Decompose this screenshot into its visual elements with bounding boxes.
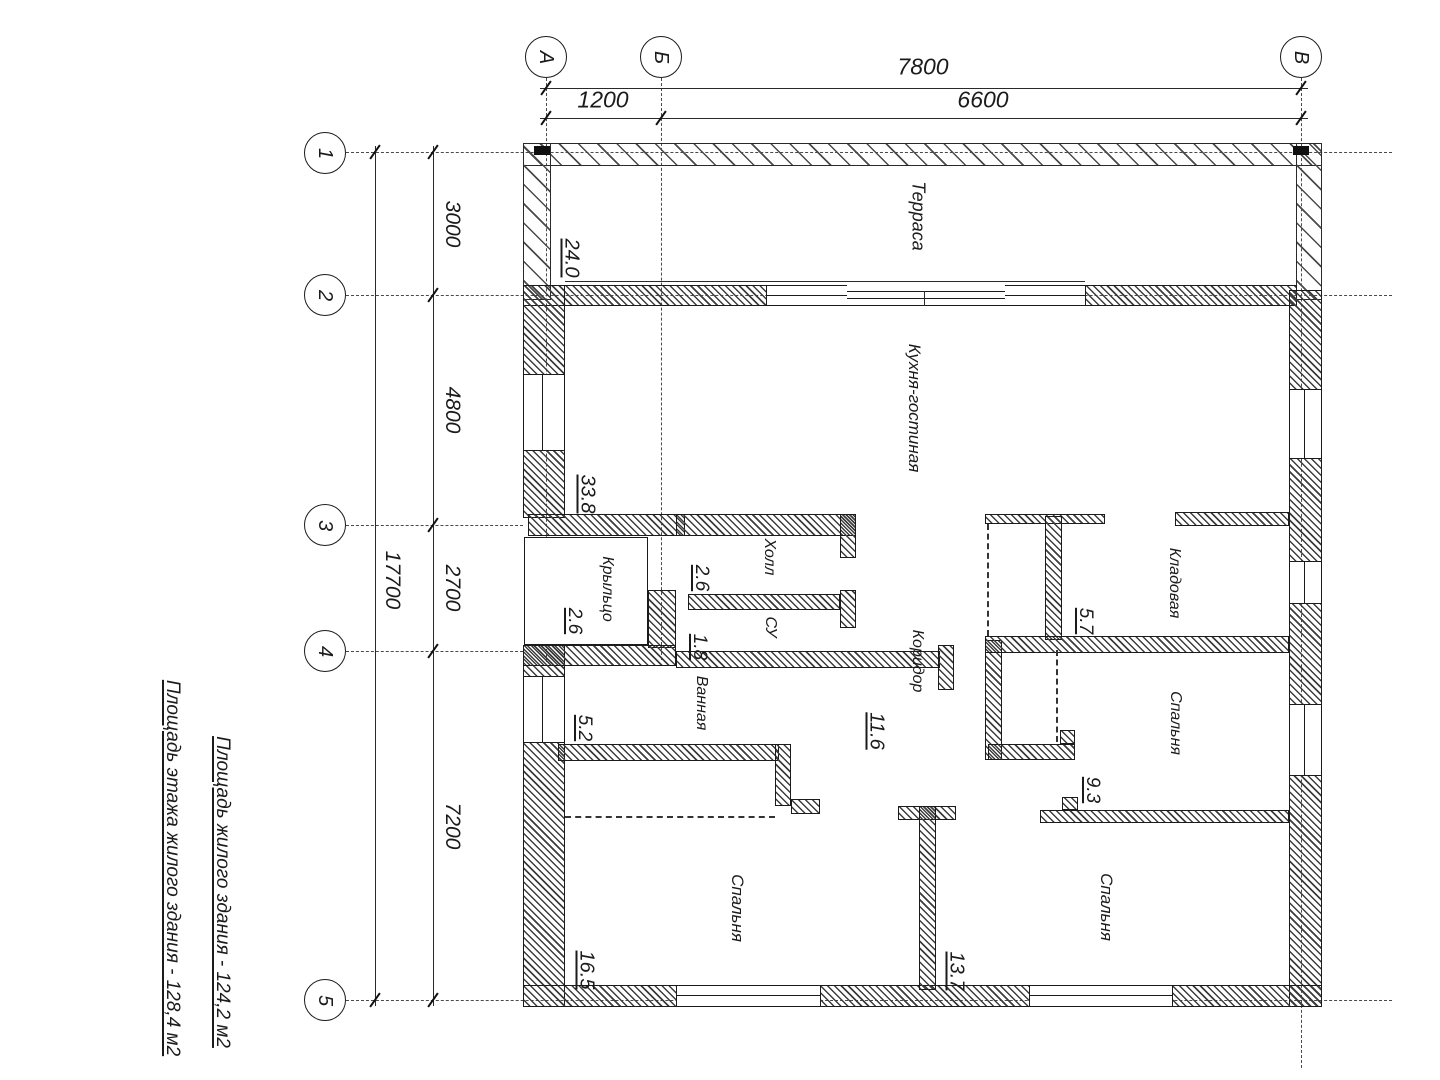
dim-text-2700: 2700: [440, 565, 464, 612]
note-floor-area: Площадь этажа жилого здания - 128,4 м2: [161, 680, 183, 1056]
axis-bubble-2: 2: [304, 274, 346, 316]
dim-text-17700: 17700: [380, 551, 404, 609]
axis-bubble-5: 5: [304, 979, 346, 1021]
wall-corridor-bedroom: [985, 640, 1002, 760]
room-area-kitchen: 33.8: [576, 475, 599, 514]
wall-hall-su: [688, 594, 840, 610]
room-label-su: СУ: [761, 617, 779, 638]
axis-line-3: [346, 525, 523, 526]
wall-left: [523, 742, 565, 1007]
room-label-corridor: Коридор: [908, 630, 926, 693]
wall-hall-top: [676, 514, 856, 536]
wall-left: [523, 450, 565, 518]
room-area-storage: 5.7: [1074, 608, 1096, 634]
room-area-porch: 2.6: [563, 608, 585, 634]
wall-axis2-right: [1085, 285, 1297, 306]
axis-label-3: 3: [314, 519, 337, 530]
dim-line-top-segments: [540, 118, 1308, 119]
door-center-line: [924, 291, 925, 306]
wall-right: [1289, 458, 1322, 562]
porch-outline: [524, 537, 648, 645]
terrace-door: [847, 291, 1005, 306]
room-area-bath: 5.2: [573, 715, 595, 741]
window: [1005, 285, 1085, 306]
window: [1289, 705, 1322, 775]
room-area-hall: 2.6: [690, 565, 712, 591]
dim-line-left-total: [375, 146, 376, 1006]
wall-bedroom-top: [1040, 810, 1289, 823]
axis-bubble-4: 4: [304, 630, 346, 672]
axis-bubble-v: В: [1280, 36, 1322, 78]
axis-label-2: 2: [314, 289, 337, 300]
terrace-wall-left: [523, 143, 551, 300]
room-area-terrace: 24.0: [560, 239, 583, 278]
axis-line-4: [346, 651, 523, 652]
axis-bubble-1: 1: [304, 132, 346, 174]
room-label-bath: Ванная: [692, 676, 710, 731]
axis-label-a: А: [535, 50, 558, 63]
window: [1289, 390, 1322, 458]
closet-dashed: [1056, 650, 1058, 742]
axis-bubble-3: 3: [304, 504, 346, 546]
wall-closet-bottom: [988, 744, 1075, 760]
dim-line-top-total: [540, 88, 1308, 89]
axis-label-1: 1: [314, 147, 337, 158]
room-label-hall: Холл: [760, 539, 778, 576]
axis-label-4: 4: [314, 645, 337, 656]
dim-text-4800: 4800: [440, 387, 464, 434]
window: [767, 285, 847, 306]
wall-su-bath: [676, 651, 940, 668]
wall-storage-top: [1175, 512, 1289, 526]
wall-axis4-porch: [523, 645, 676, 666]
wall-right: [1289, 603, 1322, 705]
room-label-kitchen: Кухня-гостиная: [904, 344, 924, 473]
room-label-storage: Кладовая: [1165, 548, 1183, 619]
room-area-su: 1.8: [688, 634, 710, 660]
wall-cap: [840, 514, 856, 558]
wall-bath-bottom: [558, 744, 779, 761]
wall-cap: [840, 590, 856, 628]
room-area-bedroom-1: 9.3: [1081, 777, 1103, 803]
wall-left: [523, 285, 565, 375]
window: [523, 677, 565, 742]
wall-stub-foot: [791, 799, 820, 814]
wall-cap: [938, 645, 954, 690]
column-marker: [1293, 146, 1309, 155]
room-label-terrace: Терраса: [908, 181, 929, 250]
wall-bottom: [523, 985, 677, 1007]
wall-stub: [1062, 797, 1078, 810]
dim-text-7200: 7200: [440, 803, 464, 850]
dim-line-left-segments: [433, 146, 434, 1006]
terrace-wall-right: [1296, 143, 1322, 300]
closet-dashed: [987, 524, 989, 636]
wall-bottom: [1172, 985, 1322, 1007]
dim-text-6600: 6600: [957, 87, 1008, 114]
column-marker: [534, 146, 550, 155]
wall-bedroom-divider: [919, 806, 936, 990]
room-label-bedroom-3: Спальня: [1096, 873, 1116, 941]
axis-bubble-a: А: [525, 36, 567, 78]
note-living-area: Площадь жилого здания - 124,2 м2: [211, 736, 233, 1048]
wall-axis3-porch: [528, 514, 685, 536]
dim-text-1200: 1200: [577, 87, 628, 114]
wall-porch-right: [648, 590, 676, 648]
wall-closet-step: [1060, 730, 1075, 744]
window: [1030, 985, 1172, 1007]
wall-stub: [775, 744, 791, 806]
wall-storage-bedroom: [985, 636, 1289, 653]
terrace-wall-top: [523, 143, 1322, 166]
window: [1289, 562, 1322, 603]
wall-right: [1289, 290, 1322, 390]
room-label-porch: Крыльцо: [598, 556, 616, 622]
opening-dashed: [565, 816, 775, 818]
dim-text-7800: 7800: [897, 54, 948, 81]
wall-right: [1289, 775, 1322, 1007]
floor-plan-sheet: А Б В 1 2 3 4 5 7800 1200 6600 17700 300…: [0, 0, 1440, 1080]
wall-storage-left: [1045, 516, 1062, 640]
window: [677, 985, 820, 1007]
dim-text-3000: 3000: [440, 201, 464, 248]
room-label-bedroom-2: Спальня: [727, 874, 747, 942]
axis-bubble-b: Б: [640, 36, 682, 78]
room-area-bedroom-3: 13.7: [945, 952, 968, 991]
room-area-bedroom-2: 16.5: [575, 951, 598, 990]
terrace-floor-edge: [565, 281, 1085, 282]
axis-label-b: Б: [650, 50, 673, 63]
axis-label-5: 5: [314, 994, 337, 1005]
window: [523, 375, 565, 450]
axis-label-v: В: [1290, 50, 1313, 63]
room-area-corridor: 11.6: [865, 712, 888, 749]
room-label-bedroom-1: Спальня: [1166, 691, 1184, 755]
